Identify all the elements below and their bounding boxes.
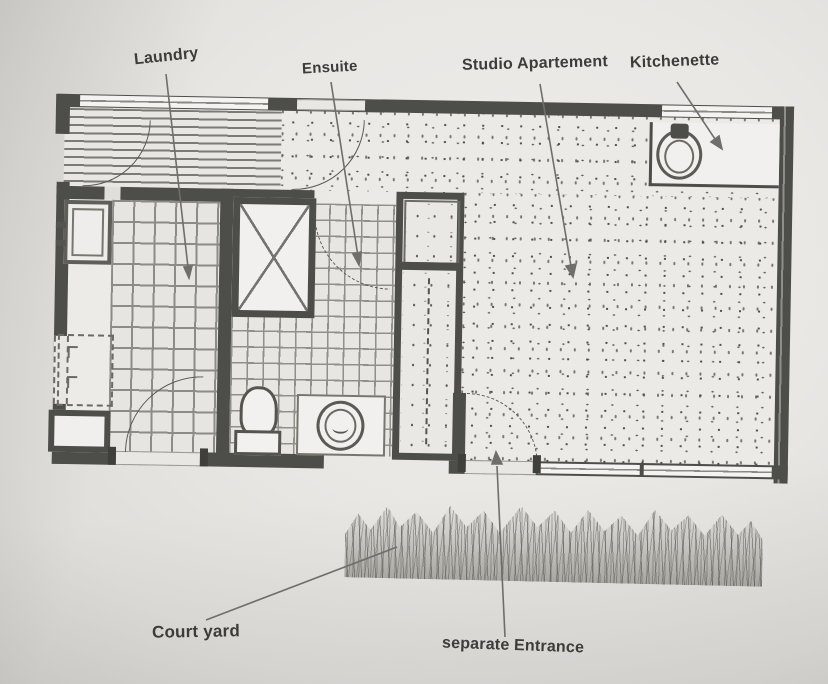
interior-wall-rooms-top-left (56, 186, 104, 200)
toilet-cistern (234, 430, 281, 456)
laundry-tub-basin (71, 208, 104, 257)
entrance-jamb-right (533, 455, 541, 473)
kitchen-sink-tap (671, 123, 689, 138)
basin-tap-squiggle (332, 423, 348, 434)
washer-mark-lower (67, 376, 77, 388)
floor-plan-photo: Laundry Ensuite Studio Apartement Kitche… (0, 0, 828, 684)
window-above-kitchenette (662, 105, 772, 118)
laundry-door-jamb-right (200, 448, 208, 466)
window-bottom-left (537, 463, 640, 475)
kitchenette-label: Kitchenette (630, 51, 720, 72)
laundry-courtyard-door-opening (116, 451, 202, 466)
corner-block-top-left (56, 94, 71, 134)
entrance-door-jamb (452, 393, 466, 461)
laundry-door-jamb-left (108, 447, 116, 465)
wardrobe-divider (398, 262, 460, 271)
wardrobe-top-shelf (403, 200, 460, 265)
separate-entrance-label: separate Entrance (442, 635, 585, 658)
laundry-cabinet (48, 410, 111, 453)
tub-tap-upper (56, 222, 66, 228)
floor-plan (43, 86, 802, 503)
washing-machine-space (57, 334, 114, 407)
entrance-jamb-left (458, 454, 466, 472)
court-yard-label: Court yard (152, 621, 240, 643)
studio-apartment-label: Studio Apartement (462, 53, 608, 75)
shower (231, 197, 316, 318)
ensuite-label: Ensuite (302, 58, 358, 78)
toilet-bowl (239, 386, 278, 437)
courtyard-grass-strip (344, 497, 764, 586)
top-door-opening (297, 99, 365, 111)
laundry-label: Laundry (133, 45, 199, 70)
washer-mark-upper (68, 346, 78, 358)
tub-tap-lower (56, 240, 66, 246)
